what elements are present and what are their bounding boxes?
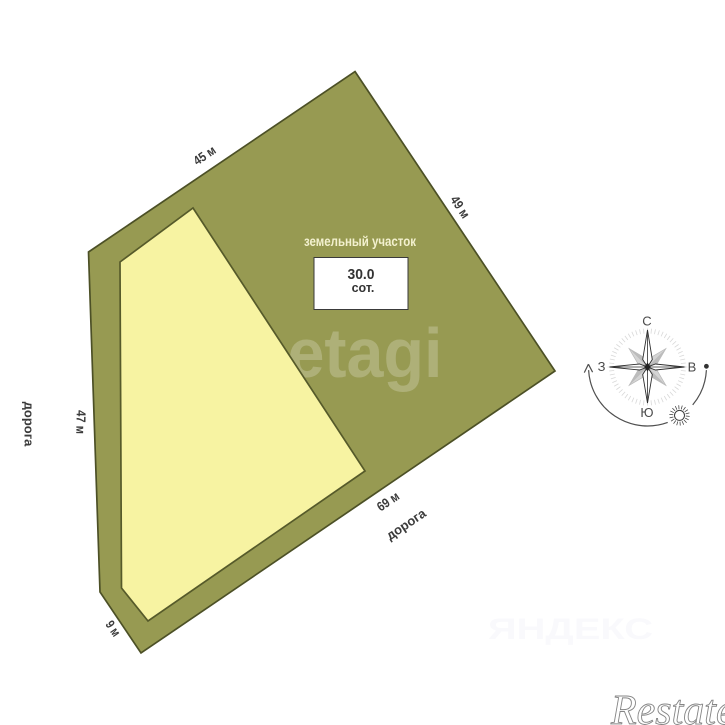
svg-text:47 м: 47 м <box>73 410 88 434</box>
svg-text:Restate: Restate <box>610 688 725 725</box>
svg-text:земельный участок: земельный участок <box>304 234 416 249</box>
svg-text:ЯНДЕКС: ЯНДЕКС <box>488 613 653 646</box>
svg-text:З: З <box>598 359 606 374</box>
svg-text:дорога: дорога <box>22 402 37 447</box>
svg-text:С: С <box>642 314 651 329</box>
svg-text:etagi: etagi <box>288 314 443 392</box>
svg-text:В: В <box>688 360 697 375</box>
svg-text:Ю: Ю <box>640 405 653 420</box>
svg-text:сот.: сот. <box>352 281 375 295</box>
